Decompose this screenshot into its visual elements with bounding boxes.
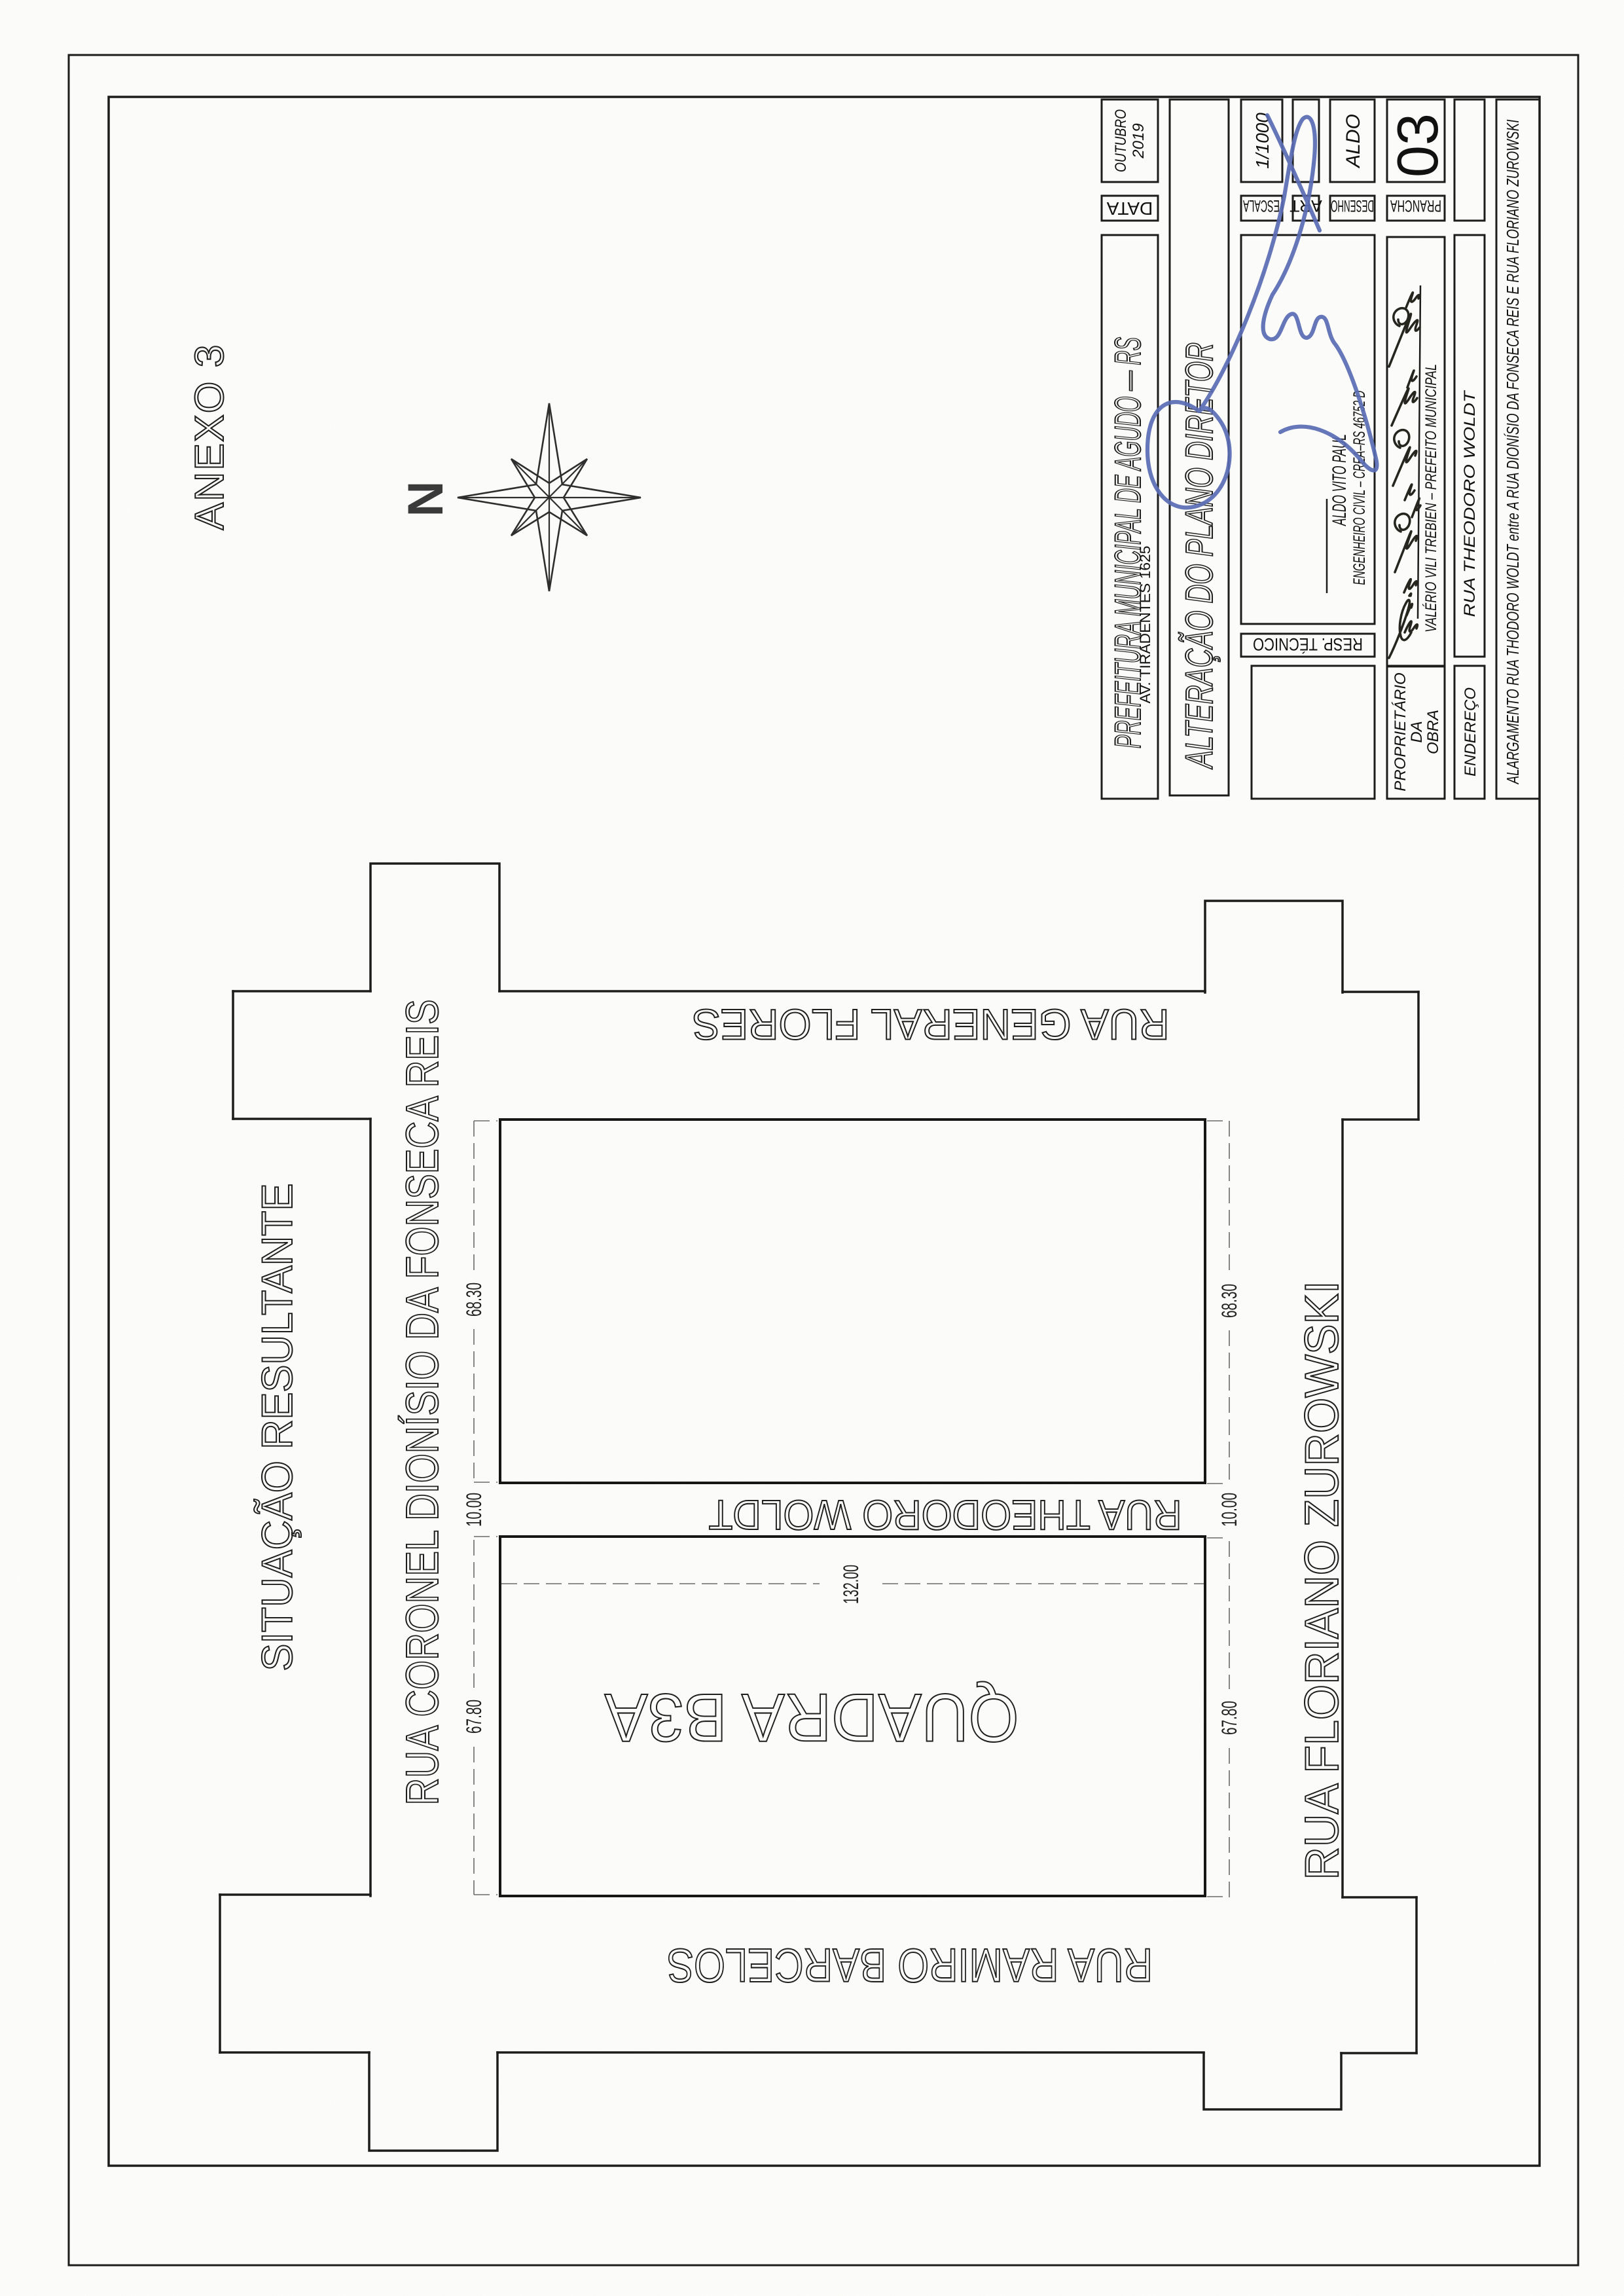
svg-text:RUA THEODORO WOLDT: RUA THEODORO WOLDT [1461, 390, 1479, 617]
svg-text:ALARGAMENTO RUA THODORO WOLDT: ALARGAMENTO RUA THODORO WOLDT entre A RU… [1503, 120, 1523, 785]
svg-text:QUADRA B3A: QUADRA B3A [604, 1679, 1019, 1755]
svg-text:RUA RAMIRO BARCELOS: RUA RAMIRO BARCELOS [667, 1939, 1153, 1991]
svg-text:03: 03 [1385, 113, 1450, 177]
svg-text:N: N [398, 481, 454, 517]
svg-text:10.00: 10.00 [462, 1493, 486, 1527]
svg-text:10.00: 10.00 [1218, 1493, 1241, 1527]
svg-text:VALÉRIO VILI TREBIEN – PREFEIT: VALÉRIO VILI TREBIEN – PREFEITO MUNICIPA… [1422, 364, 1440, 632]
svg-text:AV. TIRADENTES 1625: AV. TIRADENTES 1625 [1137, 546, 1153, 704]
svg-text:OUTUBRO: OUTUBRO [1112, 109, 1130, 172]
svg-text:ANEXO 3: ANEXO 3 [187, 344, 232, 530]
svg-text:ALDO: ALDO [1343, 114, 1364, 169]
svg-text:DESENHO: DESENHO [1331, 196, 1374, 215]
svg-text:67.80: 67.80 [462, 1700, 486, 1734]
svg-text:RUA GENERAL FLORES: RUA GENERAL FLORES [693, 1000, 1170, 1049]
svg-text:67.80: 67.80 [1218, 1701, 1241, 1735]
svg-text:68.30: 68.30 [462, 1283, 486, 1317]
svg-text:PROPRIETÁRIO: PROPRIETÁRIO [1392, 672, 1409, 791]
svg-text:ENDEREÇO: ENDEREÇO [1462, 687, 1479, 776]
svg-text:PRANCHA: PRANCHA [1390, 196, 1441, 215]
svg-text:DA: DA [1408, 721, 1426, 742]
svg-text:OBRA: OBRA [1424, 710, 1442, 754]
svg-text:132.00: 132.00 [839, 1565, 863, 1604]
svg-text:SITUAÇÃO RESULTANTE: SITUAÇÃO RESULTANTE [253, 1184, 301, 1671]
svg-text:RESP. TÉCNICO: RESP. TÉCNICO [1253, 634, 1363, 654]
svg-text:DATA: DATA [1106, 198, 1153, 219]
svg-text:RUA CORONEL DIONÍSIO DA FONSEC: RUA CORONEL DIONÍSIO DA FONSECA REIS [397, 1000, 448, 1806]
svg-text:68.30: 68.30 [1218, 1284, 1241, 1318]
svg-text:RUA FLORIANO ZUROWSKI: RUA FLORIANO ZUROWSKI [1296, 1281, 1348, 1880]
svg-text:RUA THEODORO WOLDT: RUA THEODORO WOLDT [709, 1491, 1182, 1539]
svg-text:2019: 2019 [1130, 123, 1147, 158]
svg-text:ALTERAÇÃO DO PLANO DIRETOR: ALTERAÇÃO DO PLANO DIRETOR [1178, 342, 1221, 769]
svg-text:ESCALA: ESCALA [1243, 196, 1280, 215]
